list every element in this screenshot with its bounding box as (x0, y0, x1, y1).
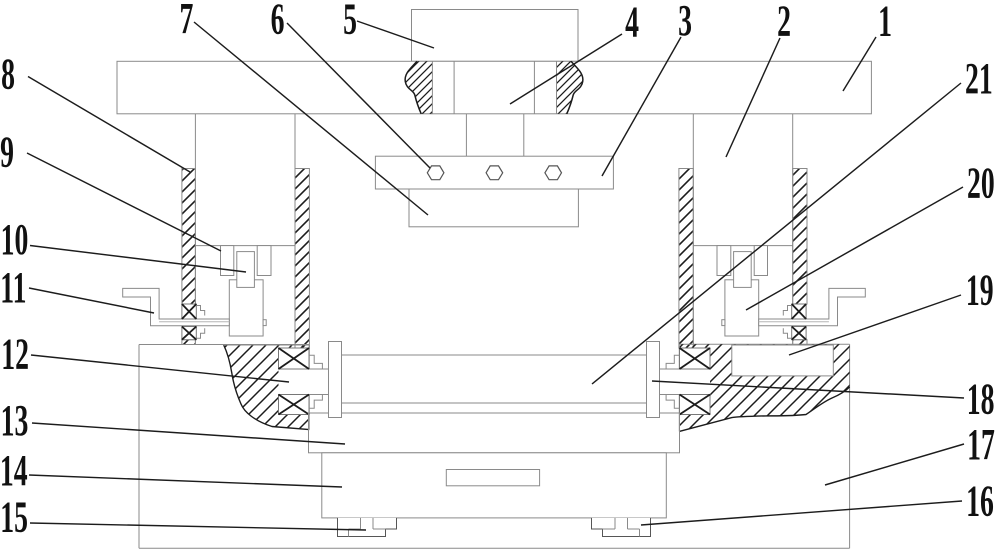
svg-text:13: 13 (1, 395, 29, 444)
svg-text:2: 2 (777, 0, 791, 45)
svg-text:14: 14 (0, 446, 28, 495)
svg-text:9: 9 (0, 127, 14, 176)
svg-text:7: 7 (179, 0, 193, 43)
svg-text:15: 15 (0, 492, 28, 541)
svg-text:20: 20 (967, 158, 995, 207)
svg-text:1: 1 (878, 0, 892, 45)
svg-text:6: 6 (271, 0, 285, 43)
svg-text:10: 10 (1, 215, 29, 264)
svg-text:21: 21 (965, 54, 993, 103)
svg-text:11: 11 (0, 263, 26, 312)
svg-text:3: 3 (678, 0, 692, 44)
svg-text:17: 17 (967, 420, 995, 469)
svg-text:4: 4 (625, 0, 639, 46)
svg-text:19: 19 (966, 265, 994, 314)
svg-text:16: 16 (966, 476, 994, 525)
svg-text:5: 5 (343, 0, 357, 43)
svg-text:18: 18 (967, 374, 995, 423)
svg-text:8: 8 (1, 49, 15, 98)
svg-text:12: 12 (1, 329, 29, 378)
